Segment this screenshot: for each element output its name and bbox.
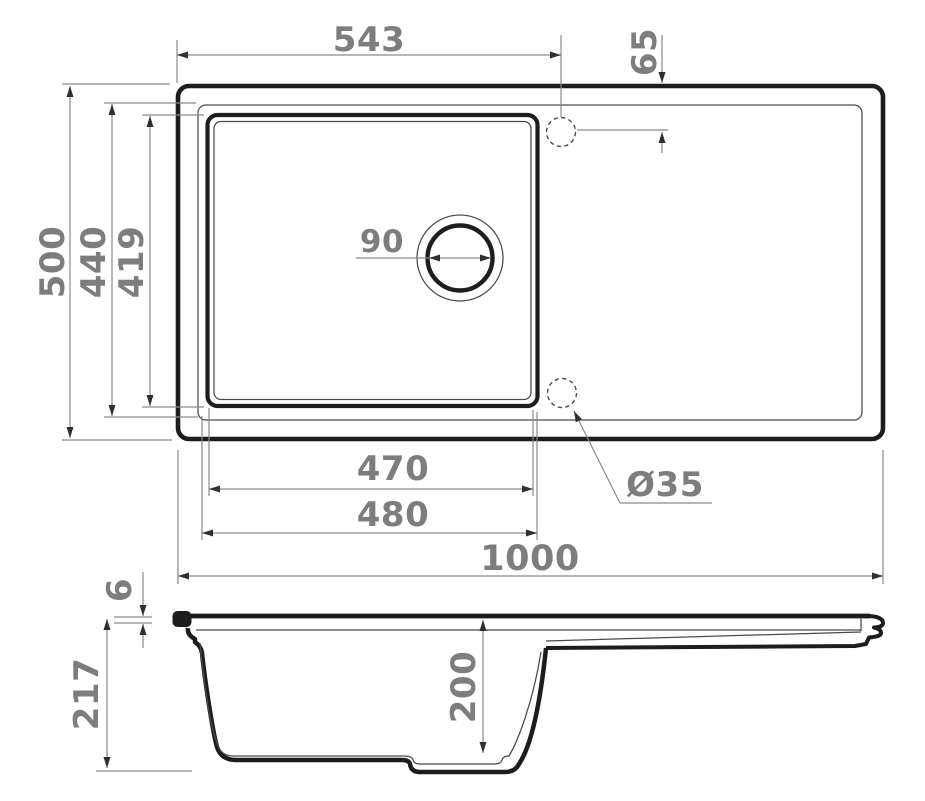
- dim-65-label: 65: [625, 28, 665, 76]
- drawing-svg: 543 65 500 440 419 90 Ø35 470 480 1000 6…: [0, 0, 925, 801]
- dim-470-label: 470: [357, 449, 429, 489]
- sink-technical-drawing: 543 65 500 440 419 90 Ø35 470 480 1000 6…: [0, 0, 925, 801]
- bowl-opening-edge: [208, 115, 538, 406]
- section-drainboard-underside-edge: [546, 632, 861, 641]
- section-view: [173, 611, 884, 772]
- dim-480-label: 480: [357, 495, 429, 535]
- dim-200-label: 200: [444, 651, 484, 723]
- top-view: [178, 86, 883, 439]
- bowl-bottom-edge: [214, 122, 531, 400]
- section-bowl-inner-wall: [200, 643, 541, 764]
- dim-1000-label: 1000: [480, 539, 579, 579]
- section-left-rim-cap: [173, 611, 192, 627]
- dim-440-label: 440: [74, 226, 114, 298]
- dim-90-label: 90: [360, 224, 404, 260]
- rim-inner-edge: [198, 105, 862, 420]
- dim-6-label: 6: [100, 578, 140, 602]
- faucet-hole-top-circle: [547, 118, 576, 147]
- dim-500-label: 500: [33, 226, 73, 298]
- faucet-hole-bottom-circle: [548, 379, 577, 408]
- dim-217-label: 217: [67, 658, 107, 730]
- dim-dia35-label: Ø35: [626, 465, 704, 505]
- dimension-labels: 543 65 500 440 419 90 Ø35 470 480 1000 6…: [33, 20, 704, 730]
- section-right-edge-profile: [546, 616, 883, 648]
- section-bowl-outer-wall: [188, 628, 546, 772]
- dimension-217: [96, 619, 192, 771]
- dim-543-label: 543: [333, 20, 405, 60]
- dim-419-label: 419: [112, 226, 152, 298]
